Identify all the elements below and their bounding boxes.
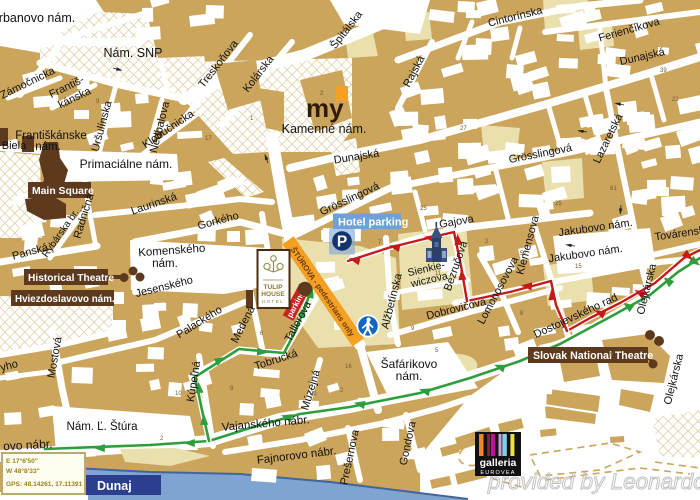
svg-text:11: 11 <box>435 271 442 277</box>
svg-text:nám.: nám. <box>396 369 423 383</box>
svg-text:10: 10 <box>175 391 182 397</box>
svg-text:25: 25 <box>555 201 562 207</box>
svg-text:Historical Theatre: Historical Theatre <box>28 273 114 284</box>
svg-text:TULIP: TULIP <box>263 284 283 291</box>
svg-text:rbanovo nám.: rbanovo nám. <box>0 11 75 25</box>
svg-text:galleria: galleria <box>480 457 517 469</box>
svg-text:E 17°6'50": E 17°6'50" <box>6 457 38 465</box>
svg-text:Nám. Ľ. Štúra: Nám. Ľ. Štúra <box>67 420 139 433</box>
svg-text:HOUSE: HOUSE <box>261 291 285 298</box>
svg-text:ovo nábr.: ovo nábr. <box>3 437 53 454</box>
svg-text:16: 16 <box>345 364 352 370</box>
svg-text:Hviezdoslavovo nám.: Hviezdoslavovo nám. <box>15 294 115 305</box>
svg-text:15: 15 <box>575 264 582 270</box>
svg-text:W 48°8'33": W 48°8'33" <box>6 467 40 475</box>
svg-text:nám.: nám. <box>35 141 61 153</box>
svg-text:51: 51 <box>520 251 527 257</box>
svg-text:Primaciálne nám.: Primaciálne nám. <box>80 157 173 171</box>
svg-text:27: 27 <box>460 126 467 132</box>
svg-text:P: P <box>337 234 347 251</box>
svg-text:25: 25 <box>420 206 427 212</box>
svg-text:Hotel parking: Hotel parking <box>338 217 408 229</box>
svg-text:39: 39 <box>660 68 667 74</box>
svg-text:Kamenné nám.: Kamenné nám. <box>282 122 367 136</box>
svg-text:nám.: nám. <box>152 258 178 270</box>
svg-text:Dunaj: Dunaj <box>97 479 132 493</box>
svg-text:Slovak National Theatre: Slovak National Theatre <box>533 350 653 362</box>
svg-text:GPS: 48.14261, 17.11391: GPS: 48.14261, 17.11391 <box>6 481 83 488</box>
svg-text:21: 21 <box>310 391 317 397</box>
svg-text:Biela: Biela <box>2 140 27 152</box>
svg-text:61: 61 <box>610 186 617 192</box>
svg-text:provided by Leonardo: provided by Leonardo <box>487 469 700 494</box>
svg-text:17: 17 <box>205 136 212 142</box>
svg-text:22: 22 <box>672 97 679 103</box>
svg-text:HOTEL: HOTEL <box>262 299 284 304</box>
svg-text:Nám. SNP: Nám. SNP <box>103 46 162 60</box>
